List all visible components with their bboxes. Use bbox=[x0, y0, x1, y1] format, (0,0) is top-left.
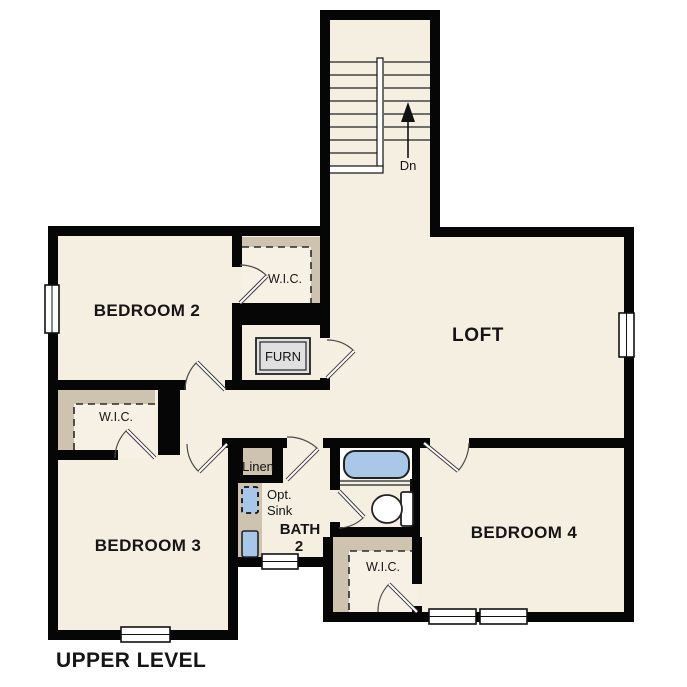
plan-title: UPPER LEVEL bbox=[56, 649, 206, 672]
bedroom3-window bbox=[121, 627, 170, 642]
floor-plan-page: Dn bbox=[0, 0, 687, 687]
bedroom2-label: BEDROOM 2 bbox=[94, 301, 201, 320]
bathtub bbox=[344, 451, 409, 478]
linen-label: Linen bbox=[242, 459, 274, 474]
loft-window bbox=[619, 313, 634, 357]
bedroom3-label: BEDROOM 3 bbox=[95, 536, 202, 555]
sink bbox=[242, 531, 258, 557]
bath-label-line1: BATH bbox=[280, 521, 321, 538]
bedroom2-window bbox=[45, 285, 59, 333]
bedroom4-label: BEDROOM 4 bbox=[471, 523, 578, 542]
floor-plan-drawing: Dn bbox=[0, 0, 687, 687]
wic3-label: W.I.C. bbox=[99, 410, 133, 424]
opt-sink-label-line1: Opt. bbox=[267, 487, 292, 502]
bedroom4-window-right bbox=[480, 609, 527, 624]
wic4-label: W.I.C. bbox=[366, 560, 400, 574]
furnace-label: FURN bbox=[265, 349, 301, 364]
stair-rail bbox=[377, 58, 383, 168]
opt-sink-label-line2: Sink bbox=[267, 503, 293, 518]
stair-direction-label: Dn bbox=[400, 158, 417, 173]
optional-sink bbox=[242, 487, 258, 513]
toilet-bowl bbox=[372, 495, 402, 523]
bedroom4-window-left bbox=[429, 609, 476, 624]
bath-label-line2: 2 bbox=[295, 538, 303, 555]
bath-window bbox=[262, 554, 298, 569]
wic2-label: W.I.C. bbox=[268, 272, 302, 286]
stair-landing-rail bbox=[329, 166, 383, 173]
loft-label: LOFT bbox=[452, 325, 504, 346]
